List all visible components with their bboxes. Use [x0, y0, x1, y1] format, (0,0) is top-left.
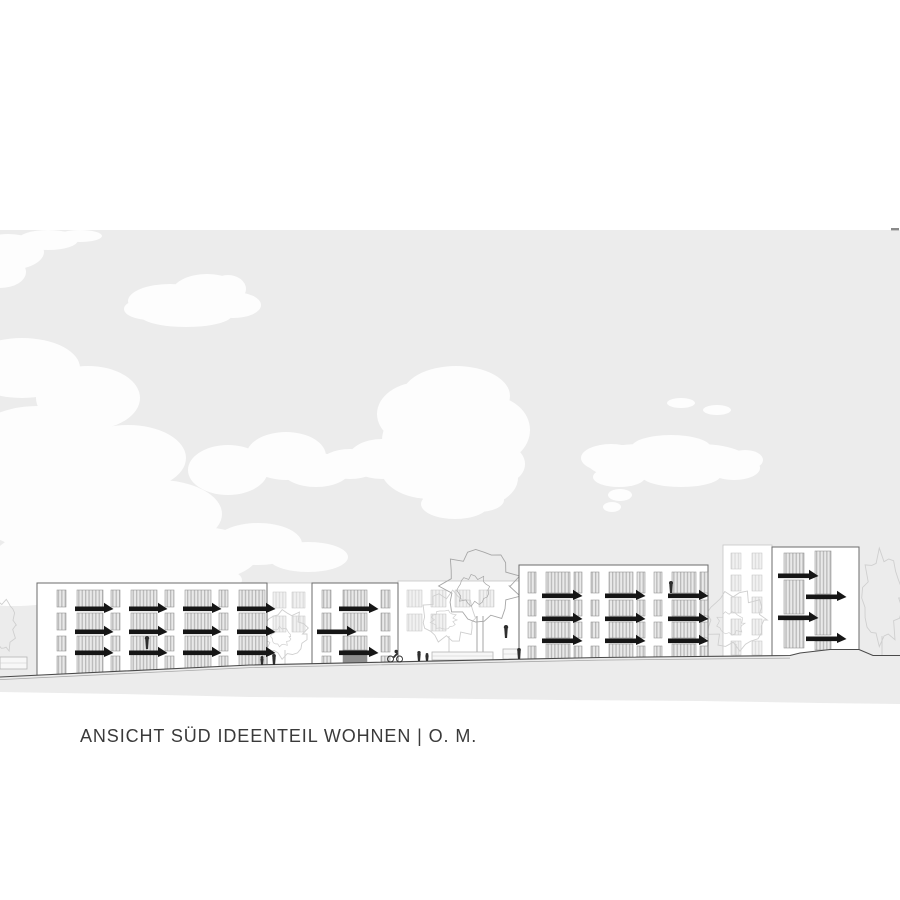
wall-left-edge [0, 657, 27, 669]
drawing-title: ANSICHT SÜD IDEENTEIL WOHNEN | O. M. [80, 726, 477, 747]
building-4-background [723, 545, 772, 670]
planter-wall [432, 652, 493, 660]
sky-edge-mark [891, 228, 899, 230]
elevation-scene [0, 0, 900, 900]
elevation-drawing: ANSICHT SÜD IDEENTEIL WOHNEN | O. M. [0, 0, 900, 900]
